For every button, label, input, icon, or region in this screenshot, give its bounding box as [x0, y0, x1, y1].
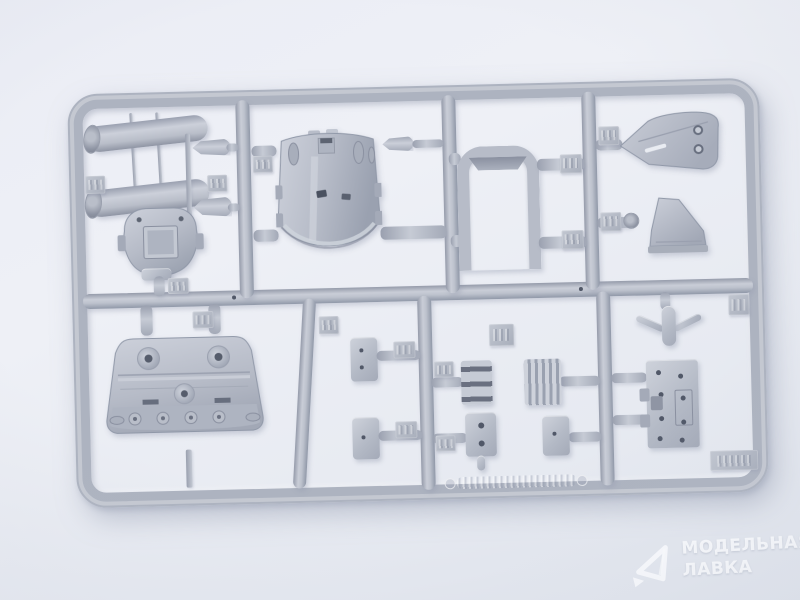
sprue-gate	[611, 372, 647, 383]
sprue	[67, 78, 769, 509]
part-number-tag	[253, 156, 273, 173]
hole	[361, 435, 365, 439]
hull-bulkhead	[103, 330, 266, 456]
part-number-tag	[435, 435, 455, 451]
u-channel-inner-face	[465, 156, 531, 171]
part-number-tag	[710, 450, 758, 471]
part-number-tag	[207, 175, 227, 192]
sprue-gate	[228, 203, 240, 211]
part-number-tag	[319, 316, 339, 334]
plate-tab	[639, 388, 649, 401]
plate-tab	[651, 396, 663, 410]
sprue-gate	[559, 376, 600, 387]
plate-two-holes	[465, 412, 497, 457]
paper-plane-logo-icon	[627, 540, 677, 590]
box-c	[542, 415, 570, 456]
watermark: МОДЕЛЬНАЯ ЛАВКА	[627, 531, 800, 584]
rivet	[656, 370, 661, 375]
sprue-gate	[431, 377, 463, 388]
curved-shell	[274, 127, 383, 272]
hole	[552, 432, 556, 436]
part-number-tag	[489, 324, 515, 347]
shield-bulkhead	[618, 109, 722, 179]
watermark-text: МОДЕЛЬНАЯ ЛАВКА	[681, 531, 800, 581]
hole	[360, 365, 364, 369]
rivet	[659, 416, 664, 421]
part-number-tag	[434, 361, 454, 377]
hole	[478, 422, 484, 428]
part-number-tag	[598, 126, 619, 146]
sprue-gate	[380, 225, 446, 240]
injection-point	[579, 287, 583, 291]
plate-stub	[477, 455, 485, 470]
slotted-bracket	[461, 360, 493, 405]
plate-panel	[674, 389, 693, 425]
part-number-tag	[395, 421, 417, 439]
part-number-tag	[560, 154, 582, 174]
sprue-gate	[154, 276, 165, 296]
riveted-plate	[646, 359, 700, 448]
box-b	[352, 417, 380, 460]
sprue-gate	[412, 139, 443, 148]
rivet	[680, 438, 685, 443]
part-number-tag	[85, 176, 105, 194]
cleat-body	[661, 306, 676, 346]
hole	[359, 348, 363, 352]
part-number-tag	[168, 278, 189, 295]
sprue-gate	[253, 229, 278, 242]
hull-bottom-rod	[186, 450, 193, 488]
rivet	[678, 374, 683, 379]
ribbed-box	[524, 359, 562, 406]
u-channel	[456, 145, 541, 271]
sprue-gate	[226, 143, 238, 151]
funnel-chute	[645, 195, 710, 259]
part-number-tag	[728, 294, 750, 316]
box-a	[350, 337, 378, 382]
plate-tab	[640, 414, 650, 427]
sprue-gate	[140, 305, 153, 335]
rivet	[658, 436, 663, 441]
part-number-tag	[600, 212, 621, 232]
part-number-tag	[192, 311, 213, 329]
hole	[479, 440, 485, 446]
injection-point	[232, 295, 236, 299]
sprue-gate	[568, 432, 601, 443]
part-number-tag	[393, 341, 415, 359]
part-number-tag	[562, 230, 584, 250]
